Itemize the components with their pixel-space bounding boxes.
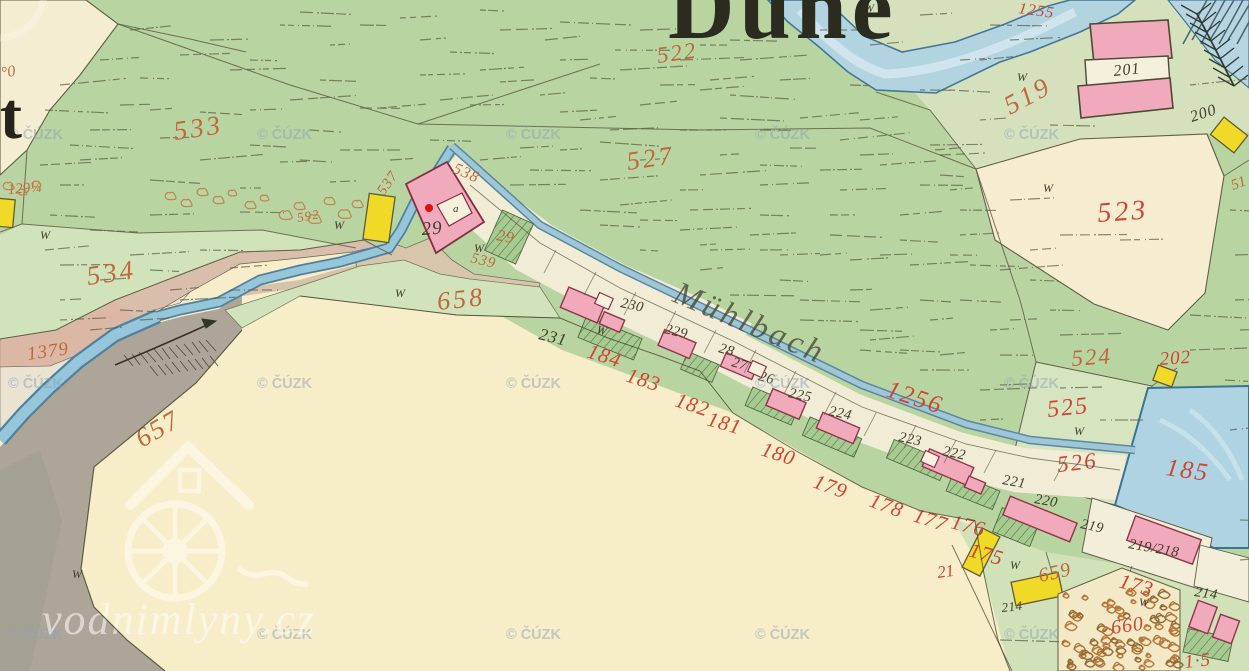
svg-text:© ČÚZK: © ČÚZK [506, 125, 562, 143]
svg-text:© ČÚZK: © ČÚZK [506, 625, 562, 643]
svg-text:© ČÚZK: © ČÚZK [257, 374, 313, 392]
svg-text:© ČÚZK: © ČÚZK [8, 374, 64, 392]
svg-text:© ČÚZK: © ČÚZK [755, 625, 811, 643]
svg-text:vodnimlyny.cz: vodnimlyny.cz [42, 595, 316, 644]
svg-text:t: t [0, 80, 22, 153]
svg-text:© ČÚZK: © ČÚZK [1004, 125, 1060, 143]
svg-text:© ČÚZK: © ČÚZK [755, 125, 811, 143]
svg-text:© ČÚZK: © ČÚZK [1004, 374, 1060, 392]
svg-text:© ČÚZK: © ČÚZK [257, 125, 313, 143]
svg-text:© ČÚZK: © ČÚZK [506, 374, 562, 392]
svg-text:© ČÚZK: © ČÚZK [1004, 625, 1060, 643]
